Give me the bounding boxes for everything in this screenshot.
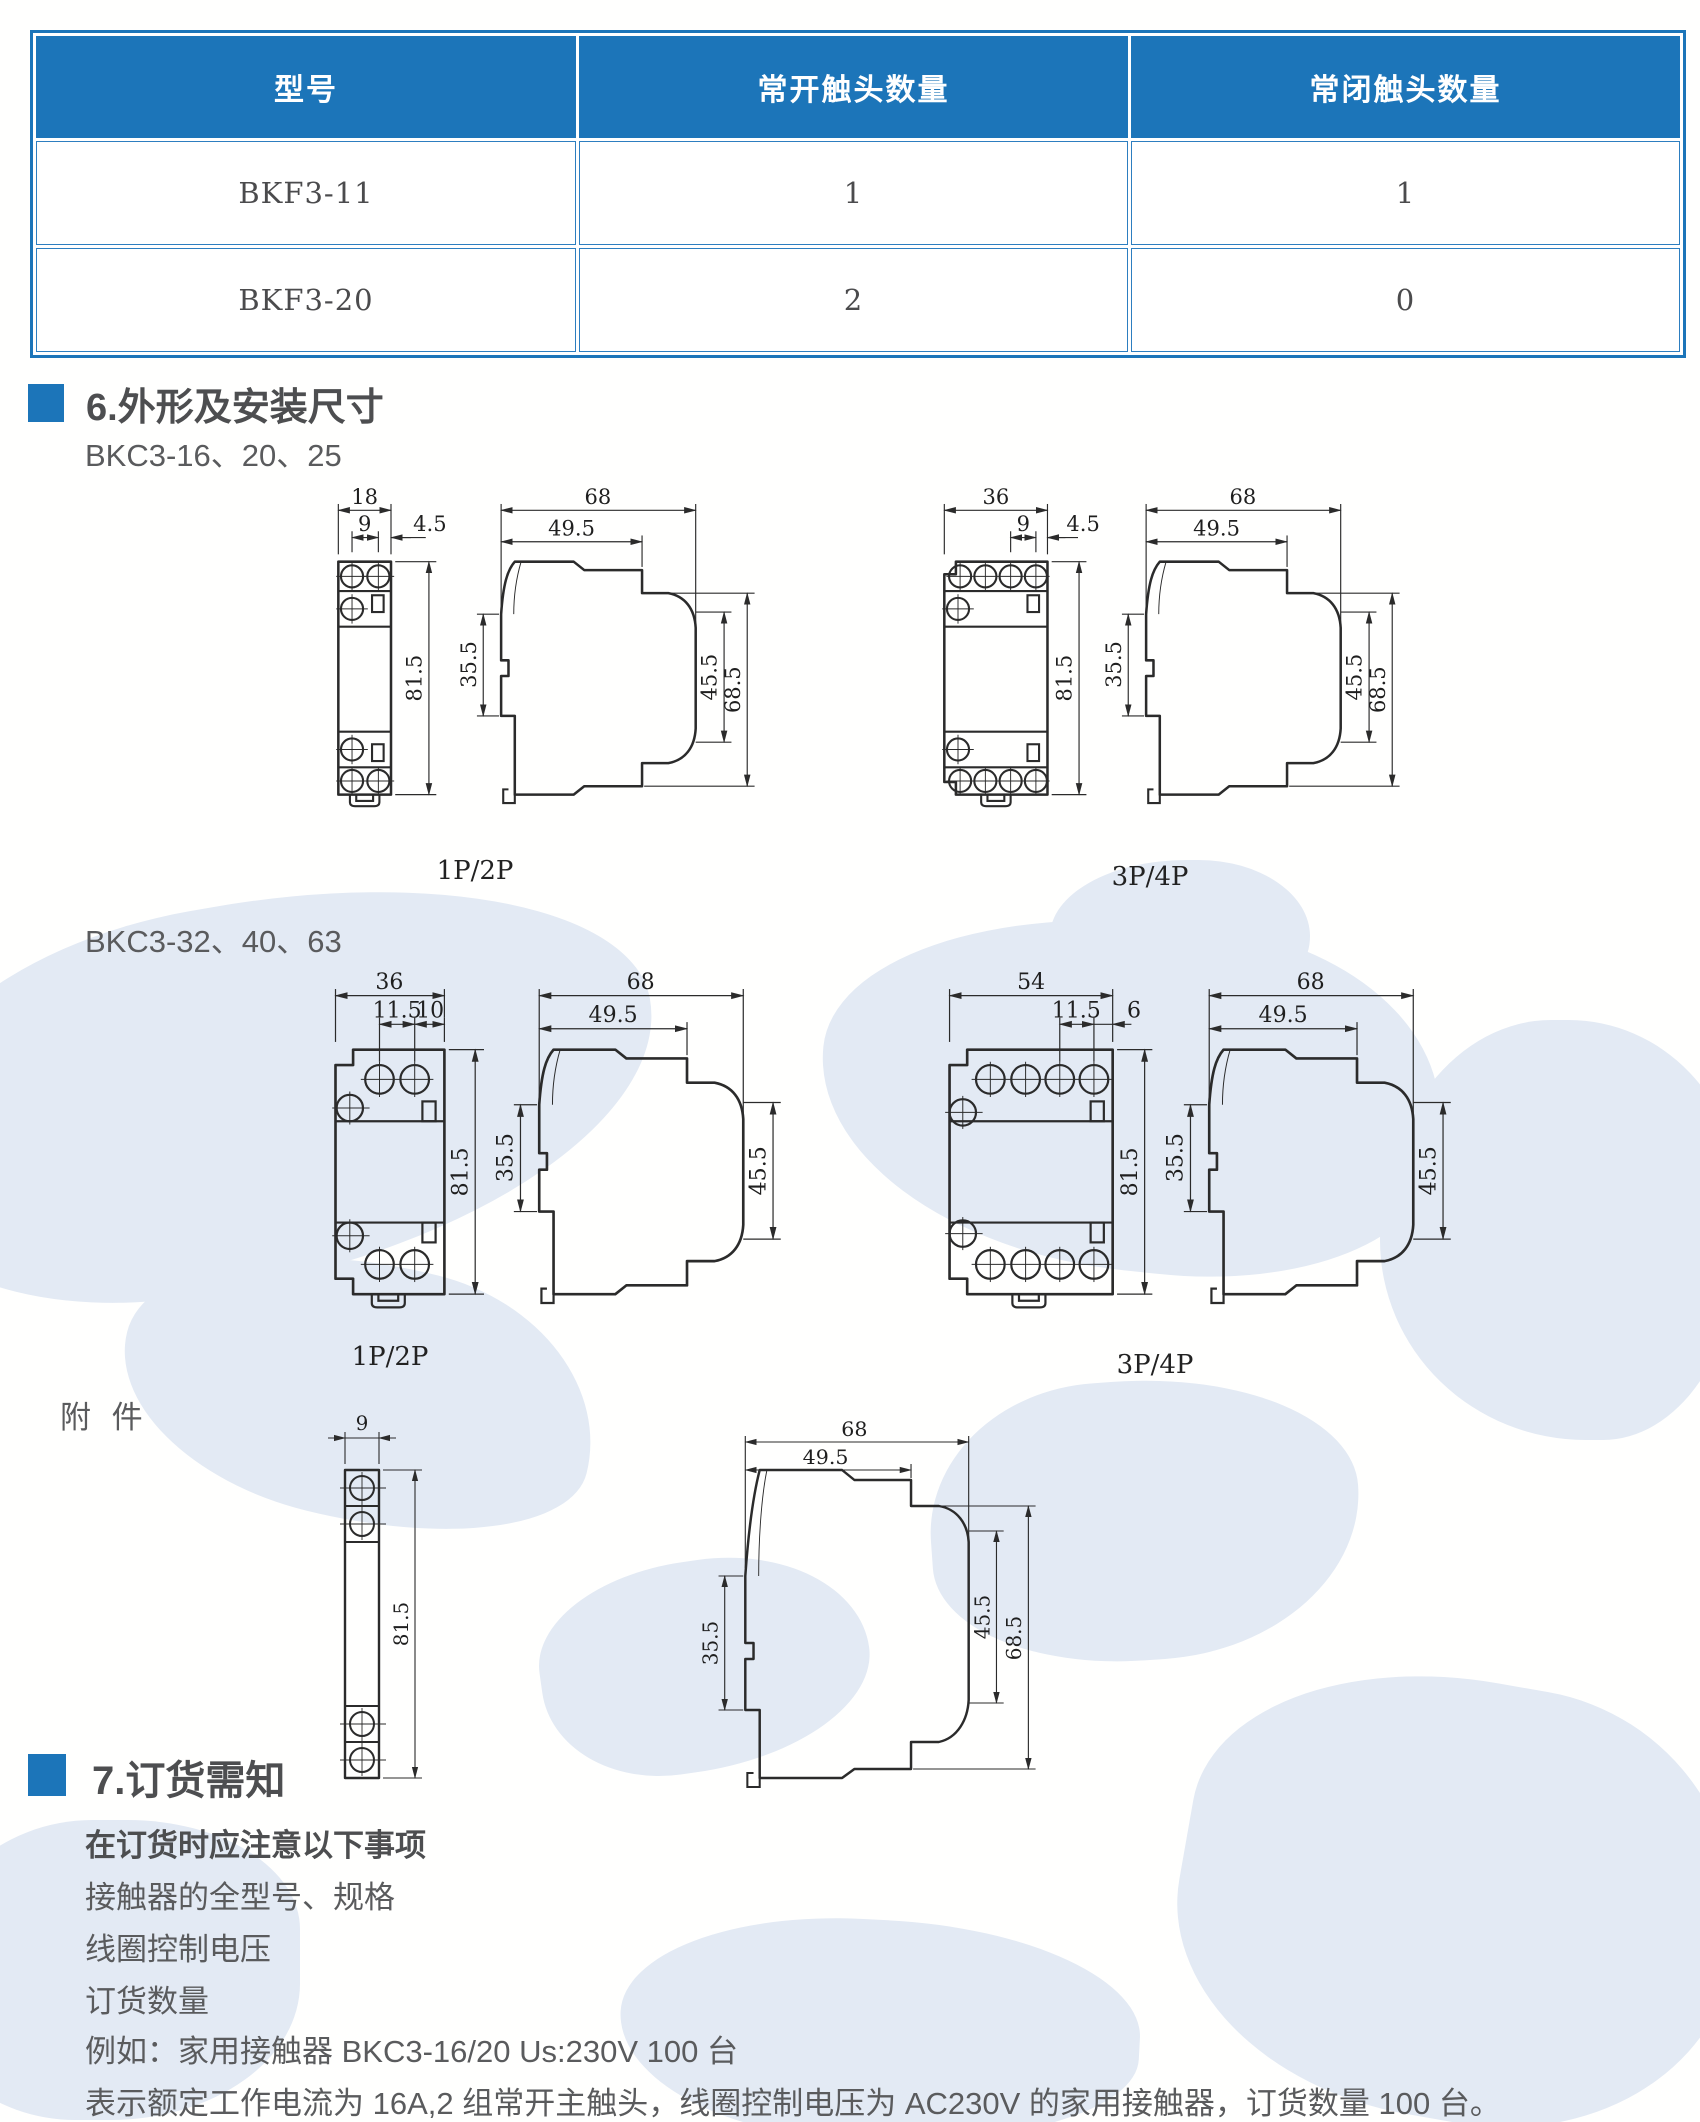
series-label-bkc3-16: BKC3-16、20、25 (85, 430, 342, 475)
dim-face-height: 45.5 (1342, 654, 1367, 701)
dim-pitch: 9 (358, 511, 371, 536)
pole-label-3p4p: 3P/4P (1095, 1350, 1215, 1380)
dim-rail-span: 35.5 (456, 641, 481, 688)
section6-bullet-icon (28, 384, 64, 422)
dim-rail-span: 35.5 (698, 1621, 722, 1666)
datasheet-page: 型号 常开触头数量 常闭触头数量 BKF3-11 1 1 BKF3-20 2 0… (0, 0, 1700, 2122)
dim-rail-span: 35.5 (494, 1133, 519, 1182)
section6-title: 6.外形及安装尺寸 (86, 376, 384, 431)
ordering-explanation: 表示额定工作电流为 16A,2 组常开主触头，线圈控制电压为 AC230V 的家… (85, 2078, 1501, 2122)
pole-label-1p2p: 1P/2P (330, 1342, 450, 1372)
bkc3-16-1p2p-side-view: 68 49.5 35.5 45.5 68.5 (458, 462, 763, 824)
ordering-note-title: 在订货时应注意以下事项 (85, 1820, 426, 1865)
dim-total-height: 68.5 (1002, 1616, 1026, 1661)
dim-depth: 68 (1297, 970, 1325, 995)
dim-height: 81.5 (1118, 1147, 1143, 1196)
accessory-label: 附 件 (60, 1392, 149, 1437)
dim-depth: 68 (841, 1417, 867, 1441)
dim-face-height: 45.5 (1416, 1146, 1441, 1195)
dim-face-height: 45.5 (746, 1146, 771, 1195)
dim-front-depth: 49.5 (803, 1445, 849, 1469)
dim-edge: 4.5 (413, 511, 446, 536)
dim-total-height: 68.5 (1365, 666, 1390, 713)
dim-rail-span: 35.5 (1164, 1133, 1189, 1182)
dim-pitch: 9 (1017, 511, 1030, 536)
dim-edge: 10 (416, 999, 444, 1024)
dim-front-depth: 49.5 (589, 1003, 638, 1028)
dim-front-depth: 49.5 (1259, 1003, 1308, 1028)
bkc3-16-1p2p-front-view: 18 9 4.5 81.5 (312, 462, 470, 824)
dim-height: 81.5 (1052, 655, 1077, 702)
dim-height: 81.5 (402, 655, 427, 702)
contact-config-table: 型号 常开触头数量 常闭触头数量 BKF3-11 1 1 BKF3-20 2 0 (30, 30, 1686, 358)
dim-face-height: 45.5 (697, 654, 722, 701)
pole-label-1p2p: 1P/2P (415, 856, 535, 886)
dim-depth: 68 (627, 970, 655, 995)
col-header-nc-contacts: 常闭触头数量 (1131, 36, 1680, 138)
dim-rail-span: 35.5 (1101, 641, 1126, 688)
cell-nc-count: 0 (1131, 248, 1680, 352)
section7-bullet-icon (28, 1754, 66, 1796)
dim-depth: 68 (584, 484, 611, 509)
col-header-no-contacts: 常开触头数量 (579, 36, 1128, 138)
bkc3-32-1p2p-side-view: 68 49.5 35.5 45.5 (494, 945, 794, 1325)
dim-front-depth: 49.5 (548, 515, 595, 540)
ordering-example: 例如：家用接触器 BKC3-16/20 Us:230V 100 台 (85, 2026, 738, 2071)
pole-label-3p4p: 3P/4P (1090, 862, 1210, 892)
dim-height: 81.5 (389, 1602, 413, 1647)
series-label-bkc3-32: BKC3-32、40、63 (85, 916, 342, 961)
cell-nc-count: 1 (1131, 141, 1680, 245)
dim-edge: 4.5 (1066, 511, 1099, 536)
dim-width: 9 (356, 1411, 369, 1435)
ordering-item: 接触器的全型号、规格 (85, 1872, 395, 1917)
cell-model: BKF3-20 (36, 248, 576, 352)
table-row: BKF3-11 1 1 (36, 141, 1680, 245)
accessory-front-view: 9 81.5 (300, 1400, 450, 1800)
cell-model: BKF3-11 (36, 141, 576, 245)
cell-no-count: 2 (579, 248, 1128, 352)
dim-face-height: 45.5 (970, 1595, 994, 1640)
bkc3-16-3p4p-side-view: 68 49.5 35.5 45.5 68.5 (1103, 462, 1408, 824)
col-header-model: 型号 (36, 36, 576, 138)
ordering-item: 订货数量 (85, 1976, 209, 2021)
bkc3-32-3p4p-front-view: 54 11.5 6 81.5 (922, 945, 1181, 1325)
table-row: BKF3-20 2 0 (36, 248, 1680, 352)
dim-depth: 68 (1229, 484, 1256, 509)
dim-edge: 6 (1127, 999, 1141, 1024)
section7-title: 7.订货需知 (92, 1748, 285, 1806)
cell-no-count: 1 (579, 141, 1128, 245)
bkc3-32-1p2p-front-view: 36 11.5 10 81.5 (308, 945, 506, 1325)
bkc3-32-3p4p-side-view: 68 49.5 35.5 45.5 (1164, 945, 1464, 1325)
dim-width: 36 (375, 970, 403, 995)
dim-front-depth: 49.5 (1193, 515, 1240, 540)
bkc3-16-3p4p-front-view: 36 9 4.5 81.5 (918, 462, 1118, 824)
ordering-item: 线圈控制电压 (85, 1924, 271, 1969)
dim-width: 18 (351, 484, 378, 509)
accessory-side-view: 68 49.5 35.5 45.5 68.5 (700, 1400, 1050, 1800)
dim-total-height: 68.5 (720, 666, 745, 713)
dim-width: 36 (983, 484, 1010, 509)
dim-pitch: 11.5 (1052, 999, 1101, 1024)
dim-height: 81.5 (449, 1147, 474, 1196)
dim-pitch: 11.5 (373, 999, 422, 1024)
dim-width: 54 (1017, 970, 1045, 995)
